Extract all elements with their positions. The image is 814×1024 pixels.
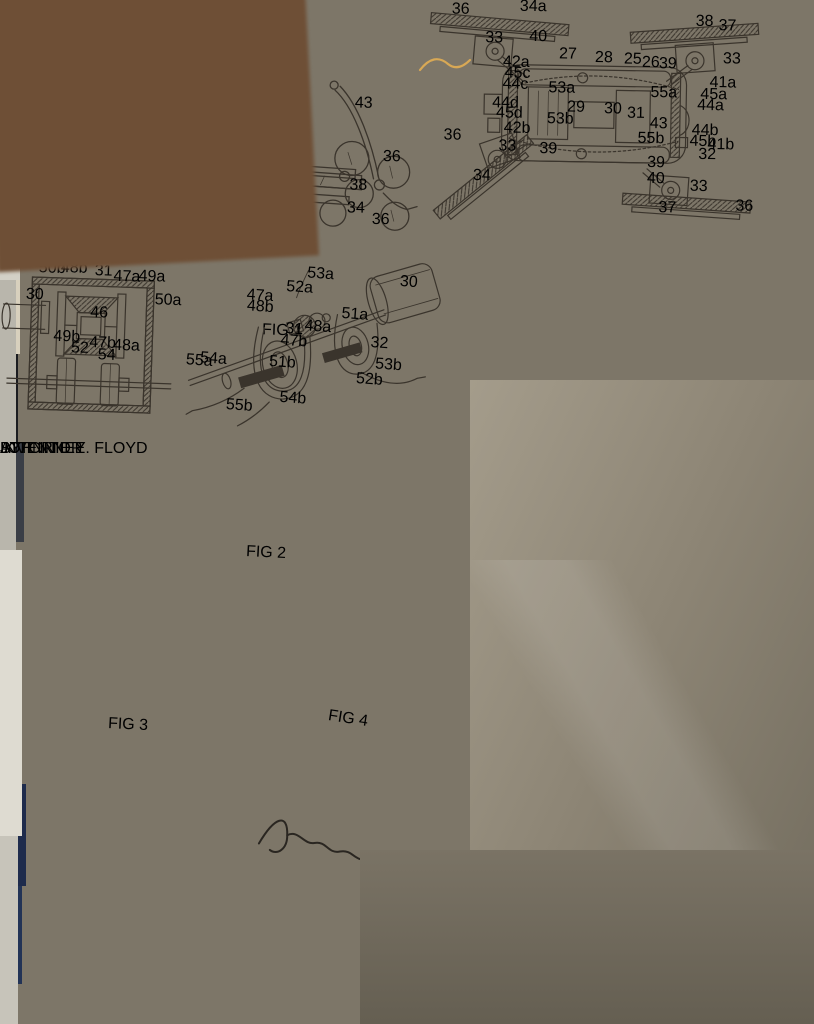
cubby-cell bbox=[233, 123, 305, 184]
svg-text:48a: 48a bbox=[113, 337, 140, 355]
svg-text:33: 33 bbox=[499, 137, 517, 154]
svg-text:55b: 55b bbox=[638, 130, 665, 147]
attorney-label: ATTORNEY bbox=[0, 440, 86, 458]
svg-text:36: 36 bbox=[383, 148, 401, 165]
svg-text:36: 36 bbox=[736, 197, 754, 214]
svg-text:49a: 49a bbox=[138, 268, 165, 286]
svg-text:31: 31 bbox=[627, 105, 645, 122]
svg-text:26: 26 bbox=[642, 54, 660, 71]
svg-text:33: 33 bbox=[690, 178, 708, 195]
cubby-cell bbox=[0, 69, 69, 130]
svg-text:38: 38 bbox=[349, 176, 367, 193]
svg-text:40: 40 bbox=[530, 28, 548, 45]
cubby-cell bbox=[226, 0, 298, 51]
svg-text:25: 25 bbox=[624, 51, 642, 68]
svg-text:52: 52 bbox=[71, 339, 89, 357]
svg-text:44a: 44a bbox=[697, 97, 724, 114]
book-spine bbox=[0, 836, 18, 1024]
cubby-cell bbox=[78, 131, 150, 192]
cubby-cell bbox=[71, 0, 143, 59]
svg-text:54b: 54b bbox=[279, 389, 307, 408]
svg-text:53b: 53b bbox=[547, 110, 574, 127]
svg-text:30: 30 bbox=[604, 100, 622, 117]
mail-cubby-shelf bbox=[0, 0, 319, 272]
svg-text:28: 28 bbox=[595, 49, 613, 66]
svg-text:47a: 47a bbox=[113, 268, 140, 286]
svg-text:34: 34 bbox=[473, 167, 491, 184]
svg-text:38: 38 bbox=[696, 13, 714, 30]
svg-text:39: 39 bbox=[647, 154, 665, 171]
svg-text:36: 36 bbox=[452, 1, 470, 18]
svg-text:47b: 47b bbox=[280, 332, 308, 351]
svg-text:48a: 48a bbox=[304, 317, 332, 336]
cubby-cell bbox=[82, 197, 154, 258]
cubby-cell bbox=[159, 193, 231, 254]
cubby-cell bbox=[237, 189, 309, 250]
svg-text:51b: 51b bbox=[269, 353, 297, 372]
figure-2-caption: FIG 2 bbox=[246, 543, 287, 563]
svg-text:55a: 55a bbox=[186, 351, 214, 370]
photo-scene: in that s. D United States PATENTED bbox=[0, 0, 814, 1024]
svg-text:32: 32 bbox=[370, 334, 389, 352]
svg-text:48b: 48b bbox=[247, 297, 275, 316]
svg-text:40: 40 bbox=[647, 170, 665, 187]
svg-text:34a: 34a bbox=[520, 0, 547, 15]
svg-text:44c: 44c bbox=[503, 75, 529, 92]
svg-text:52a: 52a bbox=[286, 278, 314, 297]
svg-text:37: 37 bbox=[719, 17, 737, 34]
figure-2-drawing: 3634a3837334027282526393342a45c44c53a55a… bbox=[422, 0, 766, 233]
svg-text:46: 46 bbox=[90, 304, 108, 322]
svg-text:37: 37 bbox=[659, 199, 677, 216]
svg-text:54: 54 bbox=[98, 346, 116, 364]
cubby-cell bbox=[4, 201, 76, 262]
svg-text:30: 30 bbox=[26, 286, 44, 304]
figure-3-drawing: 50b48b3147a49a3050a4649b47b48a5254 bbox=[0, 262, 183, 438]
svg-text:27: 27 bbox=[559, 45, 577, 62]
svg-text:30: 30 bbox=[400, 273, 419, 291]
svg-text:52b: 52b bbox=[356, 370, 384, 389]
svg-text:36: 36 bbox=[444, 126, 462, 143]
cubby-cell bbox=[75, 65, 147, 126]
book-spine bbox=[0, 550, 22, 836]
figure-4-caption: FIG 4 bbox=[327, 707, 369, 731]
cubby-cell bbox=[156, 127, 228, 188]
svg-text:39: 39 bbox=[540, 140, 558, 157]
cubby-cell bbox=[230, 56, 302, 117]
svg-text:51a: 51a bbox=[341, 305, 369, 324]
svg-text:53a: 53a bbox=[549, 79, 576, 96]
cubby-cell bbox=[0, 2, 65, 63]
cubby-cell bbox=[152, 61, 224, 122]
cubby-cell bbox=[149, 0, 221, 55]
svg-text:39: 39 bbox=[659, 55, 677, 72]
svg-text:55b: 55b bbox=[226, 396, 254, 415]
svg-text:33: 33 bbox=[486, 29, 504, 46]
table-surface-bottom bbox=[360, 850, 814, 1024]
svg-text:36: 36 bbox=[372, 211, 390, 228]
figure-3-caption: FIG 3 bbox=[108, 715, 149, 735]
svg-text:42b: 42b bbox=[504, 119, 531, 136]
svg-text:33: 33 bbox=[723, 50, 741, 67]
svg-text:43: 43 bbox=[355, 95, 373, 112]
svg-text:34: 34 bbox=[347, 199, 365, 216]
svg-text:32: 32 bbox=[699, 146, 717, 163]
svg-text:50a: 50a bbox=[154, 291, 181, 309]
svg-text:55a: 55a bbox=[651, 84, 678, 101]
cubby-cell bbox=[0, 135, 72, 196]
